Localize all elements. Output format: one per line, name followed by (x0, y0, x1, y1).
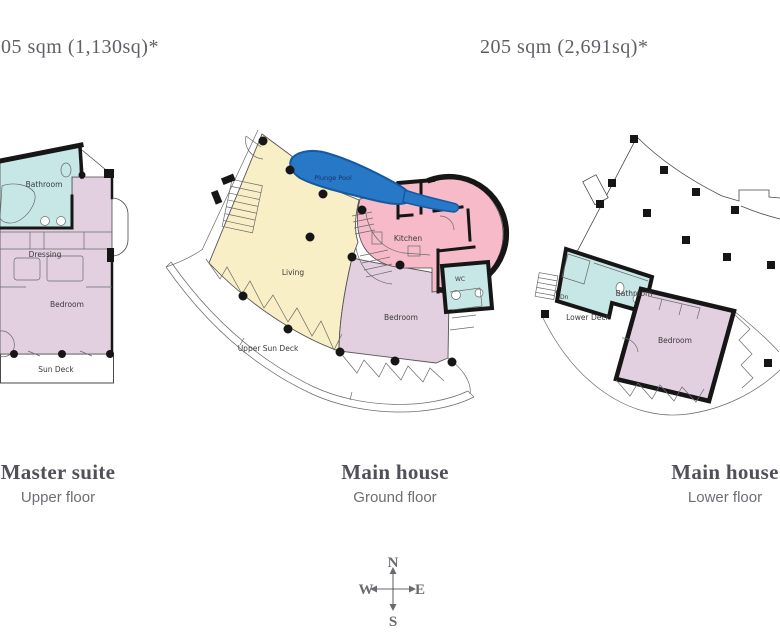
room-label-bathroom: Bathroom (26, 180, 63, 189)
floorplan-drawing: Bathroom Dressing Bedroom Sun Deck (0, 0, 780, 641)
compass-north: N (388, 555, 399, 571)
room-label-lower-deck: Lower Deck (566, 313, 610, 322)
room-label-dressing: Dressing (29, 250, 62, 259)
plan-subtitle: Lower floor (656, 489, 780, 506)
plan-title: Master suite (0, 460, 116, 485)
plan-title: Main house (326, 460, 464, 485)
room-label-living: Living (282, 268, 305, 277)
plan-title: Main house (656, 460, 780, 485)
column (79, 172, 86, 179)
room-label-bedroom-lower: Bedroom (658, 336, 692, 345)
room-label-kitchen: Kitchen (394, 234, 422, 243)
compass-south: S (389, 614, 397, 630)
stairs-down (535, 273, 558, 300)
room-label-plunge-pool: Plunge Pool (314, 174, 352, 182)
compass-east: E (415, 582, 425, 598)
wall-block (107, 248, 114, 262)
compass-west: W (359, 582, 374, 598)
caption-main-house-ground: Main house Ground floor (326, 460, 464, 506)
room-label-upper-sun-deck: Upper Sun Deck (238, 344, 299, 353)
room-label-wc: WC (455, 276, 465, 283)
room-label-bathroom-lower: Bathroom (616, 289, 653, 298)
floorplan-sheet: 05 sqm (1,130sq)* 205 sqm (2,691sq)* (0, 0, 780, 641)
room-label-bedroom: Bedroom (50, 300, 84, 309)
toilet (475, 289, 483, 297)
plan-master-suite-upper: Bathroom Dressing Bedroom Sun Deck (0, 145, 128, 383)
plan-main-house-lower: Bathroom Lower Deck Bedroom Dn (535, 135, 780, 415)
caption-master-suite: Master suite Upper floor (0, 460, 116, 506)
compass-rose: N S W E (359, 555, 426, 630)
sink (41, 217, 50, 226)
room-label-bedroom-ground: Bedroom (384, 313, 418, 322)
plan-subtitle: Ground floor (326, 489, 464, 506)
deck-line (734, 311, 779, 352)
plan-main-house-ground: Plunge Pool Living Kitchen Bedroom WC Up… (166, 130, 506, 412)
door-swing (112, 198, 128, 256)
stairs-dn-label: Dn (560, 294, 569, 301)
caption-main-house-lower: Main house Lower floor (656, 460, 780, 506)
sawtooth-edge (735, 315, 753, 388)
room-wc (442, 262, 492, 312)
room-label-sun-deck: Sun Deck (38, 365, 74, 374)
plan-subtitle: Upper floor (0, 489, 116, 506)
sink (57, 217, 66, 226)
wall-blocks (211, 174, 236, 205)
